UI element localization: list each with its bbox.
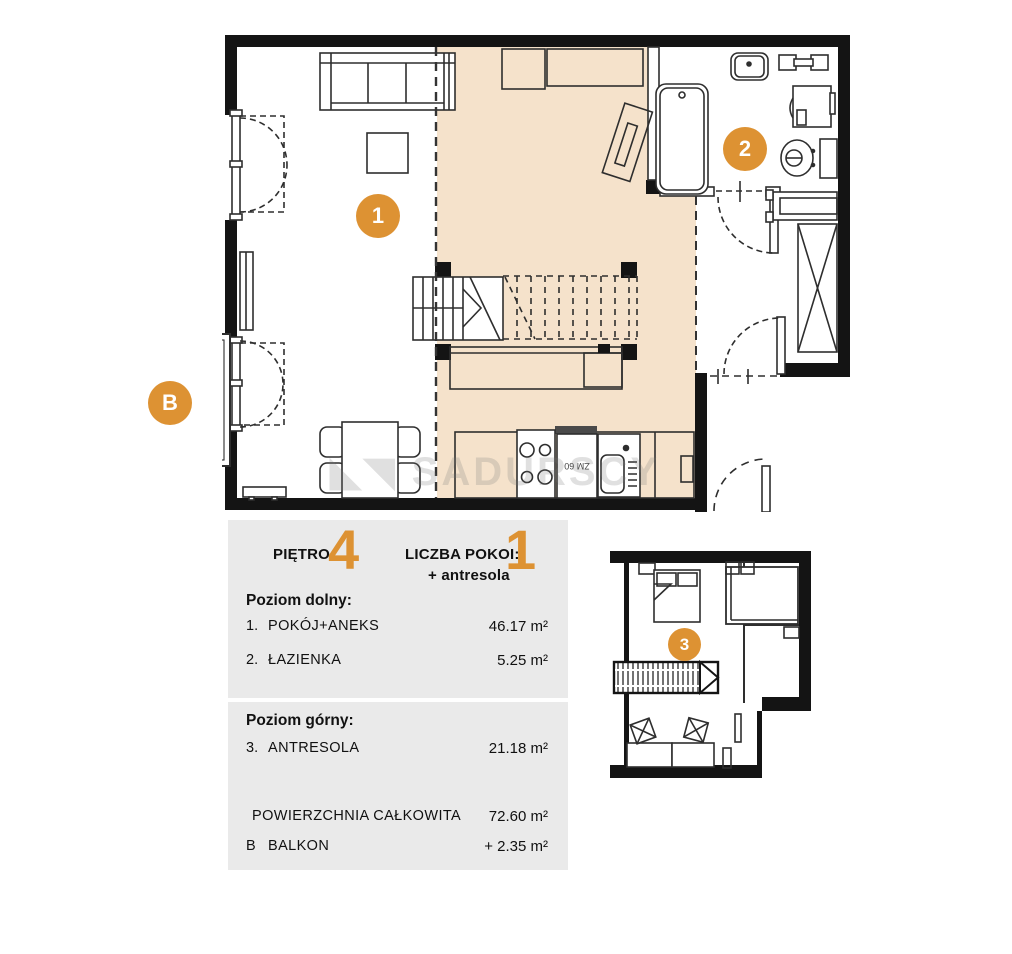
coffee-table: [367, 133, 408, 173]
void-opening: [726, 567, 798, 624]
entrance-door: [710, 317, 785, 384]
hall-closet: [798, 224, 837, 352]
main-floor-plan-drawing: ZM 60: [222, 30, 854, 512]
mezzanine-plan-drawing: [598, 538, 816, 783]
row-area: 5.25 m²: [497, 652, 548, 669]
towel-warmer: [779, 55, 828, 70]
watermark: ◣◥ SADURSCY: [330, 449, 730, 495]
room-marker-balcony: B: [148, 381, 192, 425]
row-number: 3.: [246, 740, 258, 756]
area-row-antresola: 3. ANTRESOLA 21.18 m²: [228, 740, 568, 760]
desks: [627, 743, 714, 767]
room-marker-mezzanine: 3: [668, 628, 701, 661]
watermark-text: SADURSCY: [412, 450, 660, 494]
lower-level-section-title: Poziom dolny:: [246, 592, 352, 610]
french-door-top: [230, 110, 287, 220]
row-number: B: [246, 838, 256, 854]
row-area: 21.18 m²: [489, 740, 548, 757]
area-row-total: POWIERZCHNIA CAŁKOWITA 72.60 m²: [228, 808, 568, 828]
hall-console: [766, 190, 837, 222]
upper-level-section-title: Poziom górny:: [246, 712, 354, 730]
stairs-lower-flight: [413, 277, 503, 340]
row-area: + 2.35 m²: [484, 838, 548, 855]
desk-chair-left: [630, 718, 656, 744]
room-marker-living: 1: [356, 194, 400, 238]
balcony: [222, 334, 230, 466]
floor-label: PIĘTRO:: [273, 546, 335, 563]
info-panel-upper-level: Poziom górny: 3. ANTRESOLA 21.18 m² POWI…: [228, 702, 568, 870]
floor-value: 4: [328, 522, 359, 578]
row-area: 46.17 m²: [489, 618, 548, 635]
room-marker-bathroom: 2: [723, 127, 767, 171]
watermark-logo-icon: ◣◥: [330, 450, 398, 494]
row-name: BALKON: [268, 838, 329, 854]
sofa: [320, 53, 455, 110]
bed: [654, 570, 700, 622]
mezzanine-radiators: [723, 714, 741, 768]
row-name: POWIERZCHNIA CAŁKOWITA: [252, 808, 461, 824]
area-row-lazienka: 2. ŁAZIENKA 5.25 m²: [228, 652, 568, 672]
area-row-pokoj-aneks: 1. POKÓJ+ANEKS 46.17 m²: [228, 618, 568, 638]
rooms-extra-label: + antresola: [428, 567, 510, 584]
bathroom-sink: [731, 53, 768, 80]
mezzanine-stairs: [614, 662, 718, 693]
row-name: ŁAZIENKA: [268, 652, 341, 668]
area-row-balkon: B BALKON + 2.35 m²: [228, 838, 568, 858]
radiator-left: [240, 252, 253, 330]
floorplan-page: ZM 60: [0, 0, 1012, 954]
row-number: 2.: [246, 652, 258, 668]
row-name: ANTRESOLA: [268, 740, 359, 756]
toilet: [781, 139, 837, 178]
balcony-door: [230, 337, 284, 431]
row-area: 72.60 m²: [489, 808, 548, 825]
washing-machine: [790, 86, 835, 127]
row-name: POKÓJ+ANEKS: [268, 618, 379, 634]
info-panel-lower-level: PIĘTRO: 4 LICZBA POKOI: 1 + antresola Po…: [228, 520, 568, 698]
bathtub: [656, 84, 708, 194]
rooms-label: LICZBA POKOI:: [405, 546, 520, 563]
row-number: 1.: [246, 618, 258, 634]
desk-chair-right: [684, 718, 708, 742]
